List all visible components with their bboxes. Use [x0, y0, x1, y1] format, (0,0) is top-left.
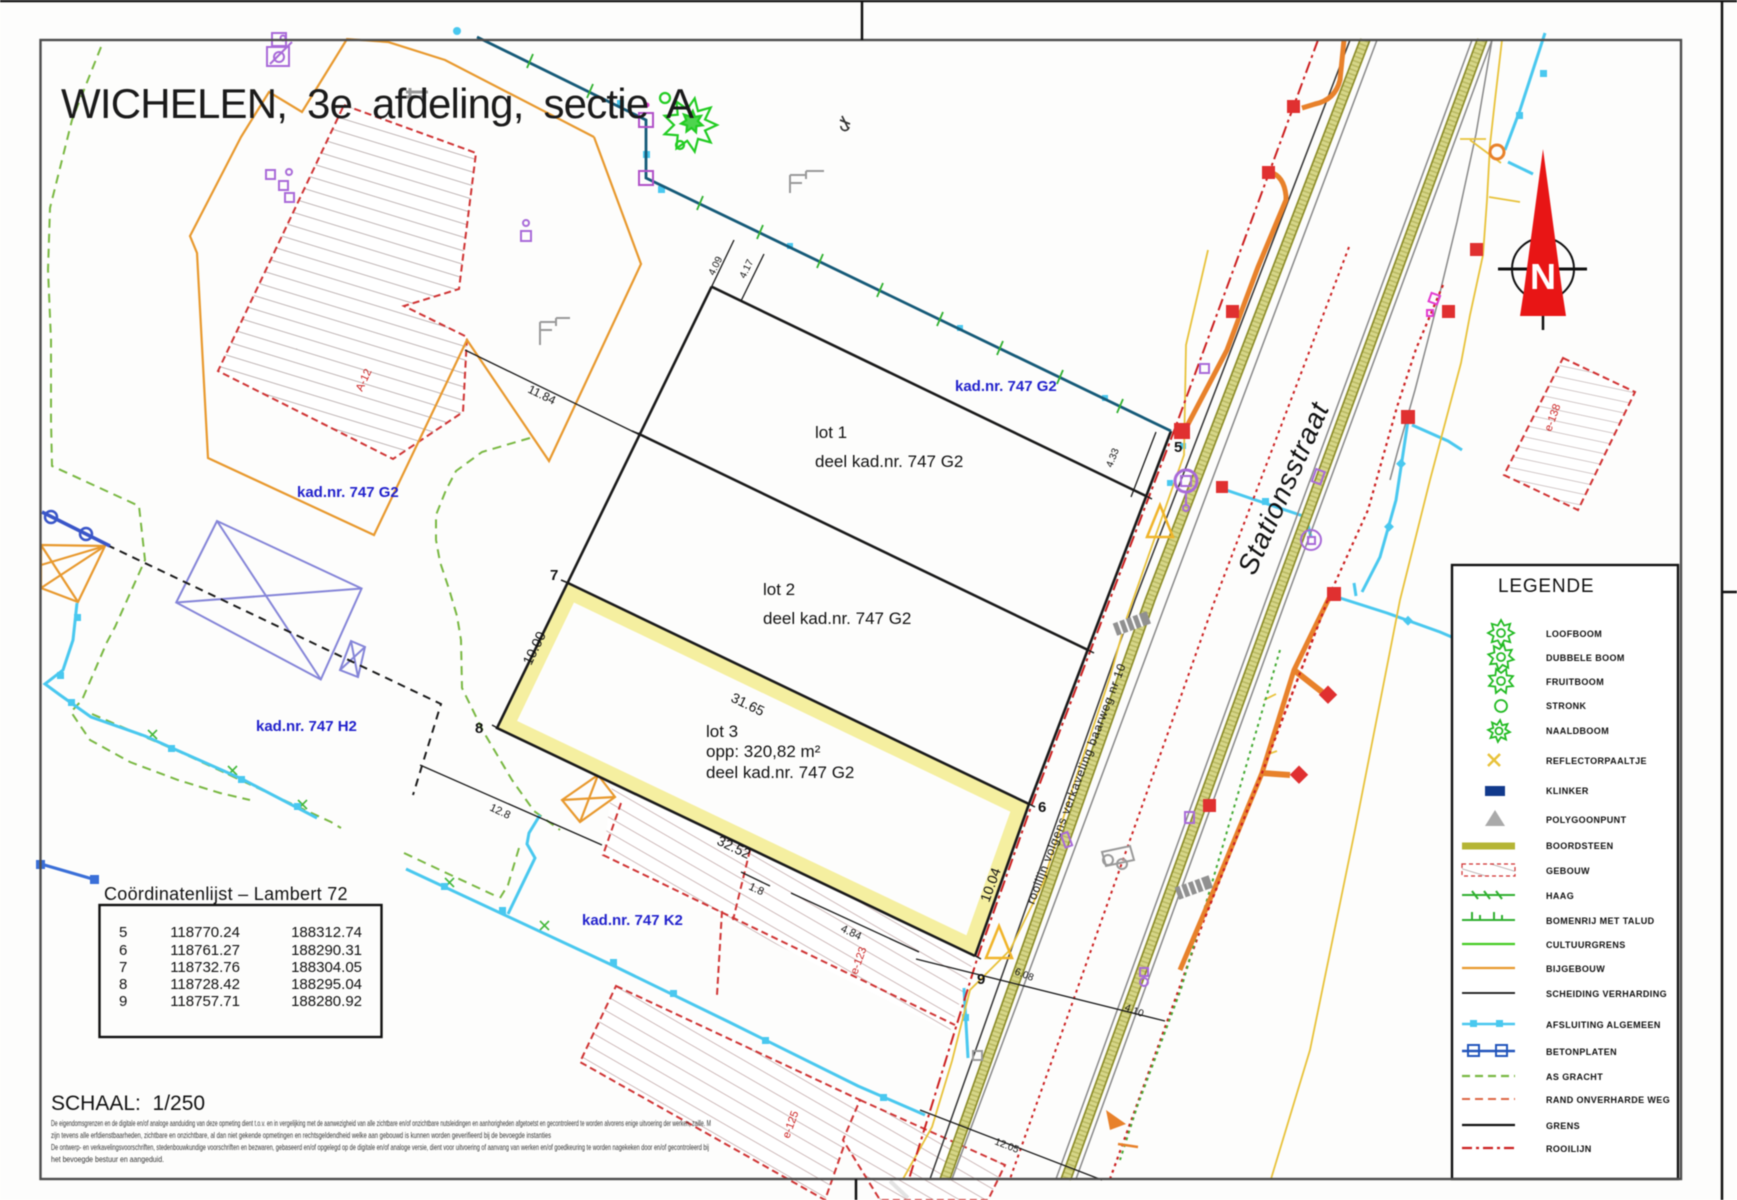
svg-text:CULTUURGRENS: CULTUURGRENS: [1546, 940, 1626, 950]
svg-text:LEGENDE: LEGENDE: [1498, 576, 1594, 597]
svg-text:DUBBELE BOOM: DUBBELE BOOM: [1546, 653, 1625, 663]
svg-text:BETONPLATEN: BETONPLATEN: [1546, 1047, 1617, 1057]
svg-text:5: 5: [1174, 439, 1182, 456]
svg-text:188295.04: 188295.04: [291, 976, 362, 993]
svg-text:8: 8: [475, 720, 483, 737]
svg-text:deel kad.nr. 747 G2: deel kad.nr. 747 G2: [763, 609, 911, 628]
svg-text:BOMENRIJ MET TALUD: BOMENRIJ MET TALUD: [1546, 916, 1655, 926]
svg-text:8: 8: [119, 976, 127, 993]
svg-text:lot 2: lot 2: [763, 580, 795, 599]
svg-text:GEBOUW: GEBOUW: [1546, 866, 1590, 876]
svg-text:9: 9: [119, 993, 127, 1010]
svg-text:ROOILIJN: ROOILIJN: [1546, 1144, 1592, 1154]
svg-text:kad.nr. 747 G2: kad.nr. 747 G2: [955, 378, 1057, 395]
svg-text:deel kad.nr. 747 G2: deel kad.nr. 747 G2: [706, 763, 854, 782]
svg-text:KLINKER: KLINKER: [1546, 786, 1589, 796]
svg-text:188290.31: 188290.31: [291, 942, 362, 959]
svg-text:118732.76: 118732.76: [170, 959, 240, 976]
svg-text:6: 6: [119, 942, 127, 959]
svg-text:N: N: [1530, 256, 1556, 297]
svg-text:118728.42: 118728.42: [170, 976, 240, 993]
svg-text:lot 3: lot 3: [706, 722, 738, 741]
svg-text:De ontwerp- en verkavelingsvoo: De ontwerp- en verkavelingsvoorschriften…: [51, 1142, 709, 1152]
svg-text:HAAG: HAAG: [1546, 891, 1574, 901]
svg-text:RAND ONVERHARDE WEG: RAND ONVERHARDE WEG: [1546, 1095, 1670, 1105]
svg-text:BIJGEBOUW: BIJGEBOUW: [1546, 964, 1605, 974]
svg-text:kad.nr. 747 G2: kad.nr. 747 G2: [297, 484, 399, 501]
svg-text:7: 7: [119, 959, 127, 976]
svg-text:LOOFBOOM: LOOFBOOM: [1546, 629, 1602, 639]
svg-text:Coördinatenlijst – Lambert 72: Coördinatenlijst – Lambert 72: [104, 884, 348, 904]
svg-text:118770.24: 118770.24: [170, 924, 240, 941]
svg-text:SCHEIDING VERHARDING: SCHEIDING VERHARDING: [1546, 989, 1667, 999]
svg-text:POLYGOONPUNT: POLYGOONPUNT: [1546, 815, 1627, 825]
svg-text:NAALDBOOM: NAALDBOOM: [1546, 726, 1609, 736]
svg-text:5: 5: [119, 924, 127, 941]
svg-text:188280.92: 188280.92: [291, 993, 362, 1010]
svg-text:kad.nr. 747 K2: kad.nr. 747 K2: [582, 912, 683, 929]
svg-text:AFSLUITING ALGEMEEN: AFSLUITING ALGEMEEN: [1546, 1020, 1661, 1030]
svg-text:De eigendomsgrenzen en de digi: De eigendomsgrenzen en de digitale en/of…: [51, 1118, 711, 1128]
svg-text:7: 7: [550, 567, 558, 584]
svg-text:GRENS: GRENS: [1546, 1121, 1580, 1131]
svg-text:188304.05: 188304.05: [291, 959, 362, 976]
svg-text:6: 6: [1038, 799, 1046, 816]
svg-text:9: 9: [977, 971, 985, 988]
svg-text:kad.nr. 747 H2: kad.nr. 747 H2: [256, 718, 357, 735]
svg-text:118761.27: 118761.27: [170, 942, 240, 959]
svg-text:deel kad.nr. 747 G2: deel kad.nr. 747 G2: [815, 452, 963, 471]
svg-text:het bevoegde bestuur en aanged: het bevoegde bestuur en aangeduid.: [51, 1154, 164, 1164]
svg-text:REFLECTORPAALTJE: REFLECTORPAALTJE: [1546, 756, 1647, 766]
svg-text:AS GRACHT: AS GRACHT: [1546, 1072, 1603, 1082]
svg-text:BOORDSTEEN: BOORDSTEEN: [1546, 841, 1614, 851]
svg-text:opp: 320,82 m²: opp: 320,82 m²: [706, 742, 821, 761]
svg-text:WICHELEN, 3e afdeling, sectie: WICHELEN, 3e afdeling, sectie A: [61, 80, 694, 127]
svg-text:188312.74: 188312.74: [291, 924, 362, 941]
svg-text:SCHAAL: 1/250: SCHAAL: 1/250: [51, 1092, 205, 1115]
svg-text:118757.71: 118757.71: [170, 993, 240, 1010]
svg-text:zijn tevens alle erfdienstbaar: zijn tevens alle erfdienstbaarheden, zic…: [51, 1130, 551, 1140]
svg-text:STRONK: STRONK: [1546, 701, 1587, 711]
svg-text:lot 1: lot 1: [815, 423, 847, 442]
svg-text:FRUITBOOM: FRUITBOOM: [1546, 677, 1604, 687]
